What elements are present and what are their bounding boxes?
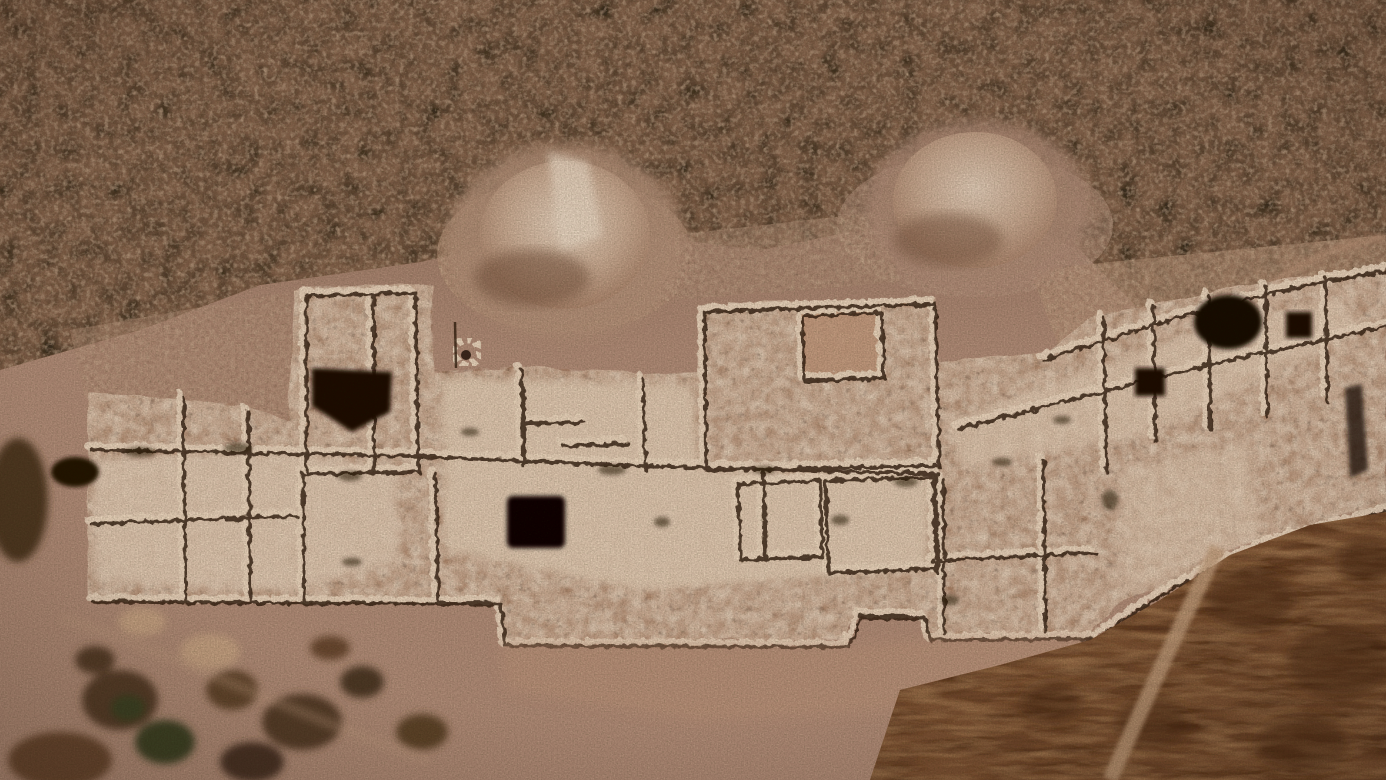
vignette xyxy=(0,0,1386,780)
aerial-photo-archaeological-site xyxy=(0,0,1386,780)
photo-canvas xyxy=(0,0,1386,780)
